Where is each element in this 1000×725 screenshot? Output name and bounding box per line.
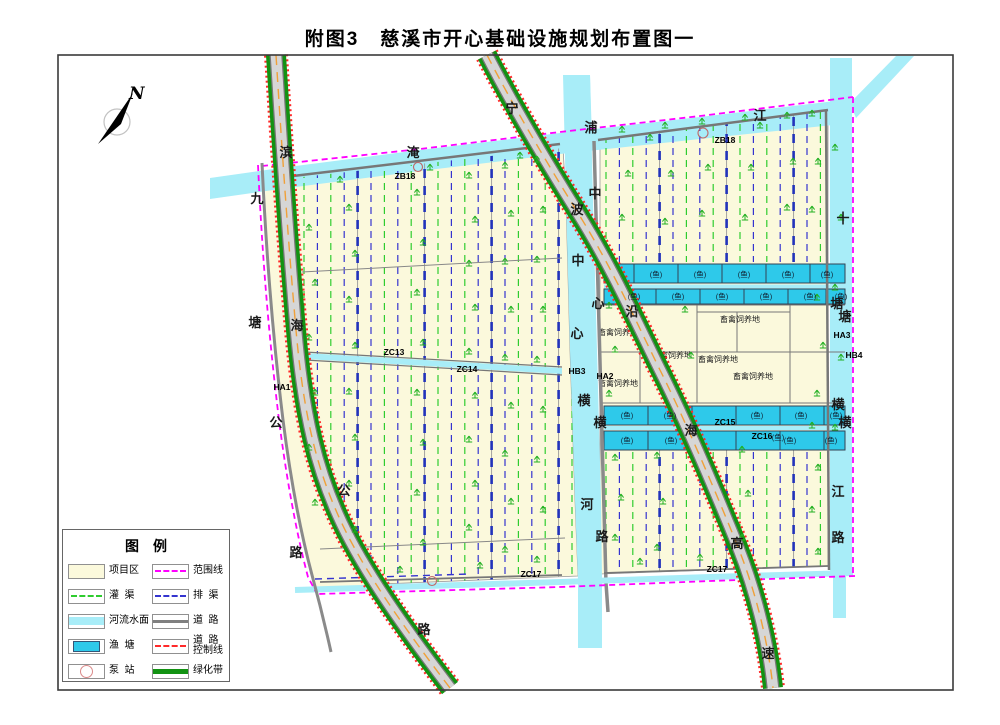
structure-id-label: ZC13: [384, 347, 405, 357]
legend-grid: 项目区范围线灌 渠排 渠河流水面道 路渔 塘道 路 控制线泵 站绿化带: [63, 560, 229, 682]
pond-fish-label: (鱼): [664, 410, 677, 420]
road-name-char-yanpu-river: 淹: [406, 145, 420, 160]
livestock-area-label: 畜禽饲养地: [720, 314, 760, 324]
structure-id-label: ZC17: [521, 569, 542, 579]
road-name-char-yanhai-expressway: 海: [684, 423, 697, 438]
pond-fish-label: (鱼): [716, 291, 729, 301]
legend-title: 图例: [63, 536, 229, 556]
map-legend: 图例 项目区范围线灌 渠排 渠河流水面道 路渔 塘道 路 控制线泵 站绿化带: [62, 529, 230, 682]
pond-fish-label: (鱼): [835, 291, 848, 301]
legend-label-fish-pond: 渔 塘: [109, 641, 135, 652]
pond-fish-label: (鱼): [782, 269, 795, 279]
pond-fish-label: (鱼): [628, 291, 641, 301]
structure-id-label: HA2: [596, 371, 613, 381]
legend-item-boundary-line: 范围线: [152, 560, 232, 582]
structure-id-label: ZC14: [457, 364, 478, 374]
pond-fish-label: (鱼): [672, 291, 685, 301]
structure-id-label: ZC17: [707, 564, 728, 574]
legend-label-green-belt: 绿化带: [193, 666, 223, 677]
road-name-char-binhai-highway: 公: [337, 483, 350, 498]
structure-id-label: ZC15: [715, 417, 736, 427]
north-arrow: N: [98, 84, 146, 144]
road-name-char-yanhai-expressway: 宁: [505, 101, 518, 116]
road-name-char-shitang-river: 十: [836, 211, 849, 226]
legend-item-pump-station: 泵 站: [68, 660, 152, 682]
road-name-char-yanhai-expressway: 高: [730, 536, 743, 551]
road-name-char-shitang-river: 路: [831, 530, 845, 545]
road-name-char-binhai-highway: 路: [417, 622, 431, 637]
pond-fish-label: (鱼): [804, 291, 817, 301]
structure-id-label: ZB18: [395, 171, 416, 181]
road-name-char-central-river: 心: [570, 326, 583, 341]
legend-swatch-fish-pond: [68, 639, 105, 654]
legend-label-project-area: 项目区: [109, 566, 139, 577]
road-name-char-central-river: 河: [580, 497, 593, 512]
pond-fish-label: (鱼): [751, 410, 764, 420]
legend-item-road-control-line: 道 路 控制线: [152, 635, 232, 657]
pond-fish-label: (鱼): [830, 410, 843, 420]
road-name-char-binhai-highway: 海: [290, 318, 303, 333]
north-arrow-needle: [98, 93, 133, 144]
road-name-char-jiutang-road: 塘: [248, 315, 261, 330]
legend-swatch-drainage-channel: [152, 589, 189, 604]
road-name-char-central-road: 中: [588, 186, 601, 201]
legend-swatch-river-surface: [68, 614, 105, 629]
legend-label-river-surface: 河流水面: [109, 616, 149, 627]
legend-label-road-control-line: 道 路 控制线: [193, 636, 223, 657]
pond-fish-label: (鱼): [784, 435, 797, 445]
road-name-char-central-road: 心: [591, 296, 604, 311]
legend-item-fish-pond: 渔 塘: [68, 635, 152, 657]
pond-fish-label: (鱼): [825, 435, 838, 445]
legend-item-drainage-channel: 排 渠: [152, 585, 232, 607]
legend-swatch-pump-station: [68, 664, 105, 679]
legend-swatch-project-area: [68, 564, 105, 579]
legend-item-road: 道 路: [152, 610, 232, 632]
pond-fish-label: (鱼): [665, 435, 678, 445]
legend-swatch-boundary-line: [152, 564, 189, 579]
livestock-area-label: 畜禽饲养地: [733, 371, 773, 381]
road-name-char-shitang-river: 江: [831, 484, 844, 499]
legend-swatch-irrigation-channel: [68, 589, 105, 604]
road-name-char-jiutang-road: 路: [289, 545, 303, 560]
legend-swatch-road: [152, 614, 189, 629]
road-name-char-binhai-highway: 滨: [279, 145, 292, 160]
pond-fish-label: (鱼): [650, 269, 663, 279]
road-name-char-yanhai-expressway: 沿: [625, 304, 638, 319]
legend-item-green-belt: 绿化带: [152, 660, 232, 682]
legend-label-boundary-line: 范围线: [193, 566, 223, 577]
pond-fish-label: (鱼): [821, 269, 834, 279]
road-name-char-central-river: 横: [577, 393, 591, 408]
legend-swatch-road-control-line: [152, 639, 189, 654]
road-name-char-yanhai-expressway: 速: [761, 646, 774, 661]
pond-fish-label: (鱼): [738, 269, 751, 279]
legend-swatch-green-belt: [152, 664, 189, 679]
road-name-char-central-road: 路: [595, 529, 609, 544]
legend-item-irrigation-channel: 灌 渠: [68, 585, 152, 607]
north-label: N: [128, 84, 146, 104]
legend-item-project-area: 项目区: [68, 560, 152, 582]
livestock-area-label: 畜禽饲养地: [698, 354, 738, 364]
legend-label-drainage-channel: 排 渠: [193, 591, 219, 602]
pond-fish-label: (鱼): [795, 410, 808, 420]
road-name-char-central-river: 中: [571, 253, 584, 268]
road-name-char-jiutang-road: 公: [269, 415, 282, 430]
legend-label-pump-station: 泵 站: [109, 666, 135, 677]
road-name-char-yanpu-river: 江: [753, 108, 766, 123]
structure-id-label: HB3: [568, 366, 585, 376]
structure-id-label: ZB18: [715, 135, 736, 145]
road-name-char-jiutang-road: 九: [249, 191, 263, 206]
ne-river-stub: [850, 56, 914, 118]
pond-fish-label: (鱼): [621, 410, 634, 420]
road-name-char-shitang-river: 横: [831, 397, 845, 412]
structure-id-label: HB4: [845, 350, 862, 360]
road-name-char-yanpu-river: 浦: [584, 120, 597, 135]
road-name-char-central-road: 横: [593, 415, 607, 430]
legend-item-river-surface: 河流水面: [68, 610, 152, 632]
pond-fish-label: (鱼): [621, 435, 634, 445]
structure-id-label: HA1: [273, 382, 290, 392]
road-name-char-yanhai-expressway: 波: [570, 202, 584, 217]
legend-label-road: 道 路: [193, 616, 219, 627]
pond-fish-label: (鱼): [760, 291, 773, 301]
structure-id-label: HA3: [833, 330, 850, 340]
structure-id-label: ZC16: [752, 431, 773, 441]
legend-label-irrigation-channel: 灌 渠: [109, 591, 135, 602]
road-name-char-shitang-river: 塘: [838, 309, 851, 324]
pond-fish-label: (鱼): [694, 269, 707, 279]
